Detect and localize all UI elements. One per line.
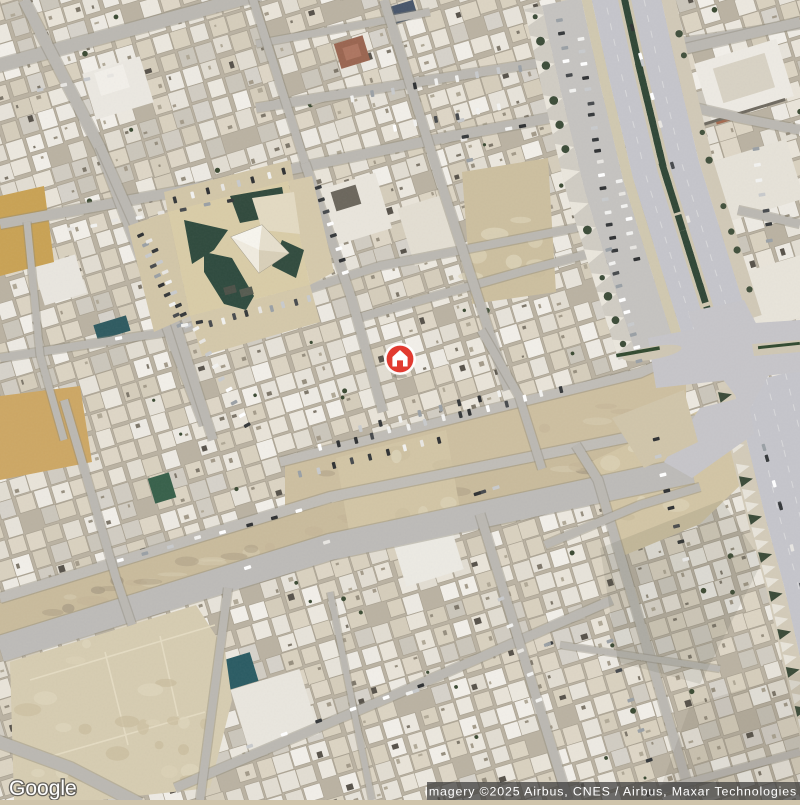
svg-text:Google: Google (9, 777, 77, 800)
svg-text:Imagery ©2025 Airbus, CNES / A: Imagery ©2025 Airbus, CNES / Airbus, Max… (425, 785, 797, 799)
